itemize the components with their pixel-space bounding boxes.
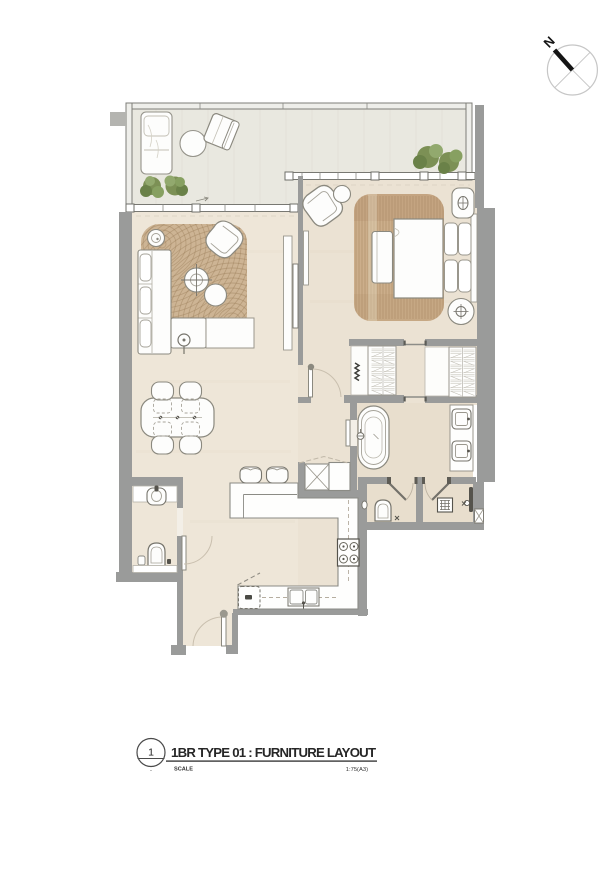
svg-text:1: 1 (148, 747, 154, 759)
svg-text:1BR TYPE 01 : FURNITURE LAYOUT: 1BR TYPE 01 : FURNITURE LAYOUT (171, 745, 376, 760)
svg-text:N: N (541, 33, 558, 50)
svg-text:SCALE: SCALE (174, 767, 193, 773)
svg-text:1:75(A3): 1:75(A3) (346, 767, 368, 773)
svg-text:.: . (150, 764, 152, 773)
